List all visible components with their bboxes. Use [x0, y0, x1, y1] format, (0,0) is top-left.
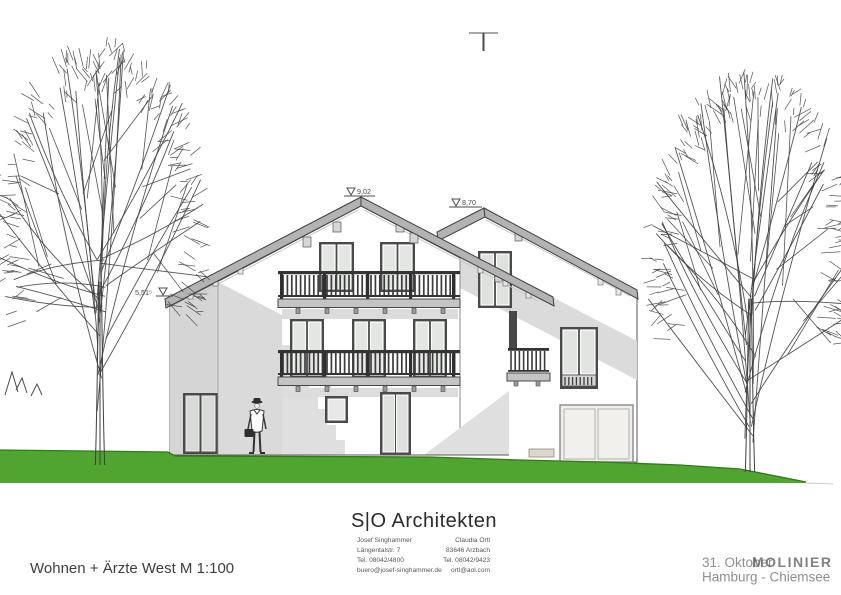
- partner-right-phone: Tel. 08042/9423: [443, 557, 490, 564]
- drawing-title: Wohnen + Ärzte West M 1:100: [30, 560, 234, 577]
- location-text: Hamburg - Chiemsee: [702, 570, 830, 585]
- elevation-drawing: 9,02 8,70 5,51⁵ S|O Architekten Josef Si…: [0, 0, 841, 595]
- balcony-shadow-upper: [282, 309, 458, 319]
- watermark-text: MOLINIER: [752, 554, 832, 570]
- partner-right-city: 83646 Arzbach: [446, 547, 490, 554]
- partner-right-email: ortl@aol.com: [451, 567, 490, 574]
- architect-logo: S|O Architekten: [351, 510, 497, 532]
- level-value-left-eave: 5,51⁵: [135, 288, 152, 297]
- french-window: [560, 327, 598, 389]
- briefcase: [245, 429, 254, 437]
- partner-left-email: buero@josef-singhammer.de: [357, 567, 442, 574]
- lower-balcony: [278, 350, 460, 392]
- garage-door: [560, 405, 633, 462]
- level-value-main-ridge: 9,02: [357, 187, 371, 196]
- balcony-door: [509, 311, 517, 350]
- ground-window: [325, 396, 348, 423]
- entrance-door: [380, 392, 411, 455]
- upper-balcony: [278, 271, 460, 314]
- annex-door: [183, 393, 218, 454]
- date-location-stamp: 31. Oktober MOLINIER Hamburg - Chiemsee: [702, 554, 832, 585]
- partner-left-name: Josef Singhammer: [357, 537, 413, 544]
- partner-left-street: Längentalstr. 7: [357, 547, 401, 554]
- level-value-right-ridge: 8,70: [462, 198, 476, 207]
- balcony-shadow-lower: [282, 388, 458, 397]
- bench: [529, 449, 554, 457]
- partner-right-name: Claudia Ortl: [455, 537, 490, 544]
- partner-left-phone: Tel. 08042/4800: [357, 557, 404, 564]
